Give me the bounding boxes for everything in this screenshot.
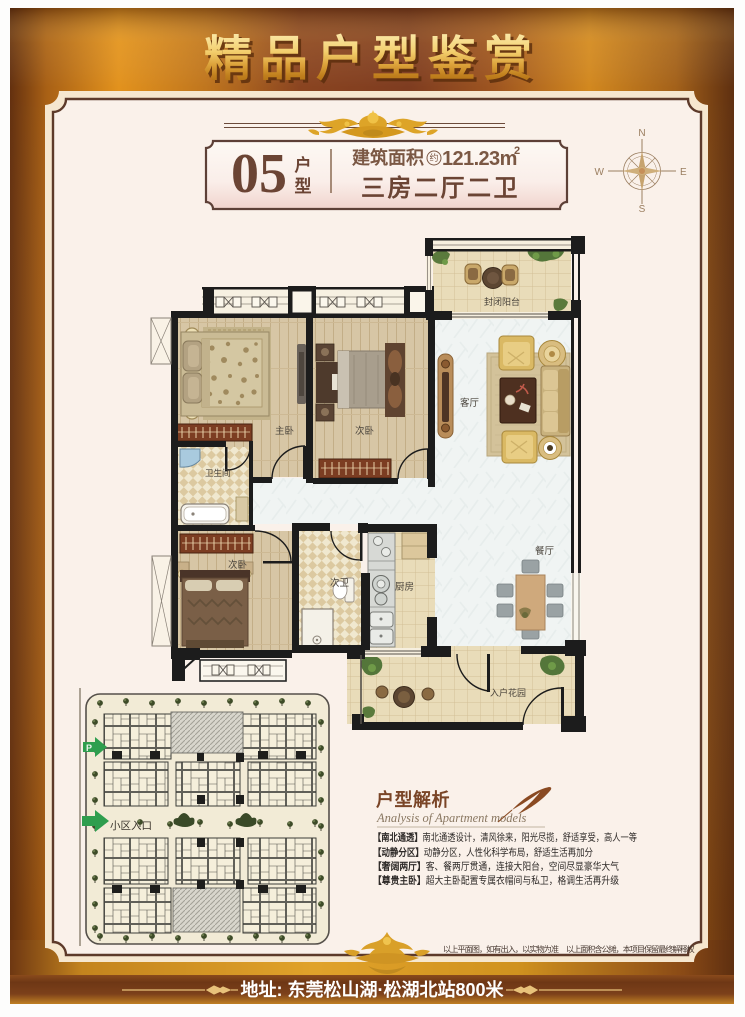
svg-text:以上平面图，如有出入，以实物为准: 以上平面图，如有出入，以实物为准 [443,944,559,954]
svg-text:约: 约 [429,152,438,163]
svg-text:次卫: 次卫 [330,577,350,589]
svg-text:户: 户 [295,155,312,175]
svg-text:121.23m: 121.23m [442,148,517,170]
svg-text:2: 2 [514,145,520,157]
svg-text:次卧: 次卧 [228,559,248,571]
svg-text:小区入口: 小区入口 [110,820,152,832]
svg-text:三房二厅二卫: 三房二厅二卫 [361,174,520,202]
svg-text:地址: 东莞松山湖·松湖北站800米: 地址: 东莞松山湖·松湖北站800米 [240,979,504,1000]
svg-text:E: E [680,167,687,178]
svg-text:【动静分区】动静分区，人性化科学布局，舒适生活再加分: 【动静分区】动静分区，人性化科学布局，舒适生活再加分 [373,846,593,859]
svg-text:型: 型 [295,176,312,196]
svg-text:厨房: 厨房 [395,581,414,593]
svg-text:S: S [639,204,646,215]
svg-text:【奢阔两厅】客、餐两厅贯通，连接大阳台，空间尽显豪华大气: 【奢阔两厅】客、餐两厅贯通，连接大阳台，空间尽显豪华大气 [373,860,619,873]
svg-text:W: W [595,167,605,178]
svg-text:餐厅: 餐厅 [535,545,555,557]
svg-text:【尊贵主卧】超大主卧配置专属衣帽间与私卫，格调生活再升级: 【尊贵主卧】超大主卧配置专属衣帽间与私卫，格调生活再升级 [373,874,619,887]
svg-text:卫生间: 卫生间 [205,468,231,478]
svg-text:【南北通透】南北通透设计，清风徐来，阳光尽揽，舒适享受，高人: 【南北通透】南北通透设计，清风徐来，阳光尽揽，舒适享受，高人一等 [373,831,637,844]
svg-text:户型解析: 户型解析 [376,789,450,810]
svg-text:封闭阳台: 封闭阳台 [484,296,520,307]
svg-text:05: 05 [231,143,287,205]
svg-text:主卧: 主卧 [275,425,295,437]
svg-text:P: P [86,743,92,753]
svg-text:入户花园: 入户花园 [490,687,526,698]
svg-text:建筑面积: 建筑面积 [352,147,424,168]
svg-text:精品户型鉴赏: 精品户型鉴赏 [204,33,540,86]
svg-text:以上面积含公摊，本项目保留最终解释权: 以上面积含公摊，本项目保留最终解释权 [566,944,694,954]
svg-text:N: N [638,128,645,139]
svg-text:Analysis of Apartment models: Analysis of Apartment models [376,811,527,825]
svg-text:次卧: 次卧 [355,425,375,437]
svg-text:客厅: 客厅 [460,397,480,409]
